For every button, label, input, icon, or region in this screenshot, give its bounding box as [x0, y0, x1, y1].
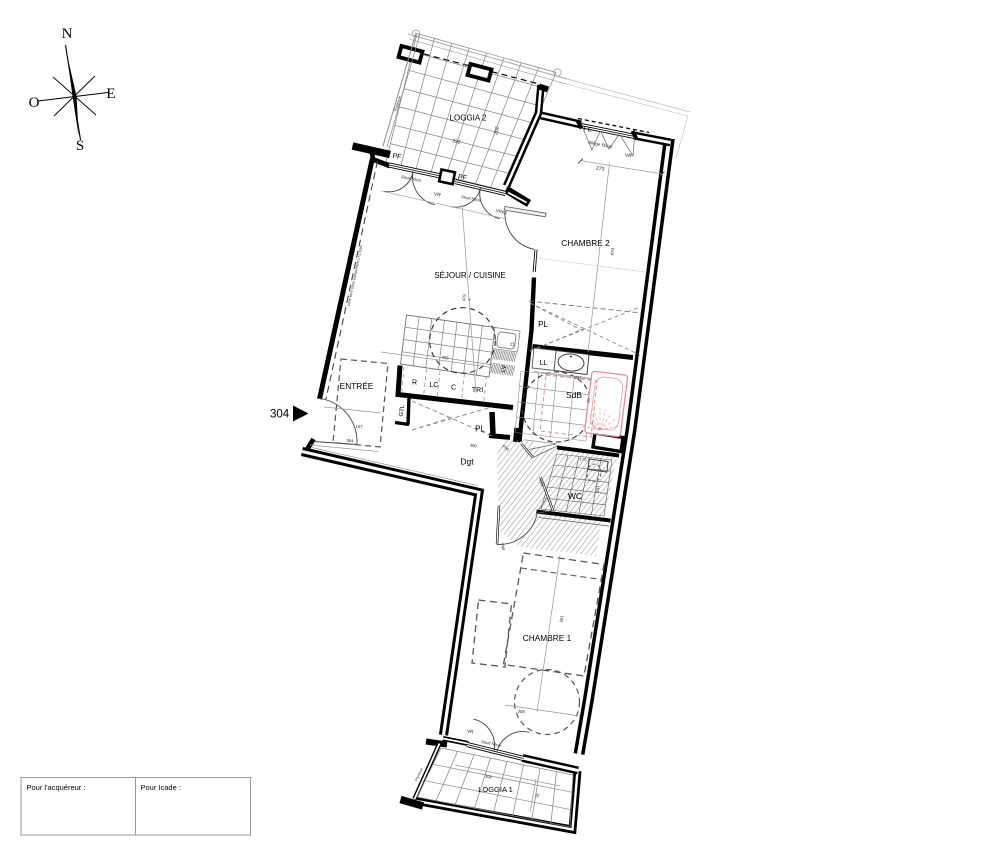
svg-text:479: 479	[461, 293, 467, 301]
svg-text:E: E	[106, 86, 115, 102]
svg-text:LOGGIA 1: LOGGIA 1	[478, 785, 513, 794]
svg-text:LV: LV	[501, 365, 508, 373]
svg-text:SdB: SdB	[566, 390, 582, 400]
svg-text:ENTRÉE: ENTRÉE	[340, 381, 374, 391]
svg-text:151: 151	[595, 484, 601, 492]
svg-text:TRI: TRI	[472, 387, 483, 394]
svg-text:WC: WC	[568, 491, 582, 501]
svg-text:LL: LL	[540, 360, 548, 367]
svg-text:425: 425	[441, 355, 449, 361]
svg-text:PL: PL	[538, 320, 548, 329]
svg-text:O: O	[29, 95, 40, 111]
svg-text:Dgt: Dgt	[460, 457, 474, 467]
svg-text:551: 551	[559, 614, 565, 622]
svg-text:LOGGIA 2: LOGGIA 2	[450, 114, 487, 123]
svg-text:R: R	[412, 380, 417, 387]
svg-text:LC: LC	[430, 382, 439, 389]
svg-text:167: 167	[355, 424, 363, 430]
svg-text:Pour Icade :: Pour Icade :	[141, 783, 181, 792]
svg-text:175: 175	[579, 457, 587, 463]
svg-text:C: C	[451, 385, 456, 392]
svg-text:PL: PL	[475, 425, 485, 434]
svg-text:304: 304	[270, 409, 290, 421]
svg-text:Pour l'acquéreur :: Pour l'acquéreur :	[27, 783, 86, 792]
svg-text:S: S	[76, 138, 84, 154]
svg-text:N: N	[62, 26, 73, 42]
svg-text:CHAMBRE 2: CHAMBRE 2	[561, 238, 610, 248]
svg-text:237: 237	[574, 375, 582, 381]
svg-text:064: 064	[346, 438, 354, 444]
svg-text:SÉJOUR / CUISINE: SÉJOUR / CUISINE	[434, 271, 506, 280]
